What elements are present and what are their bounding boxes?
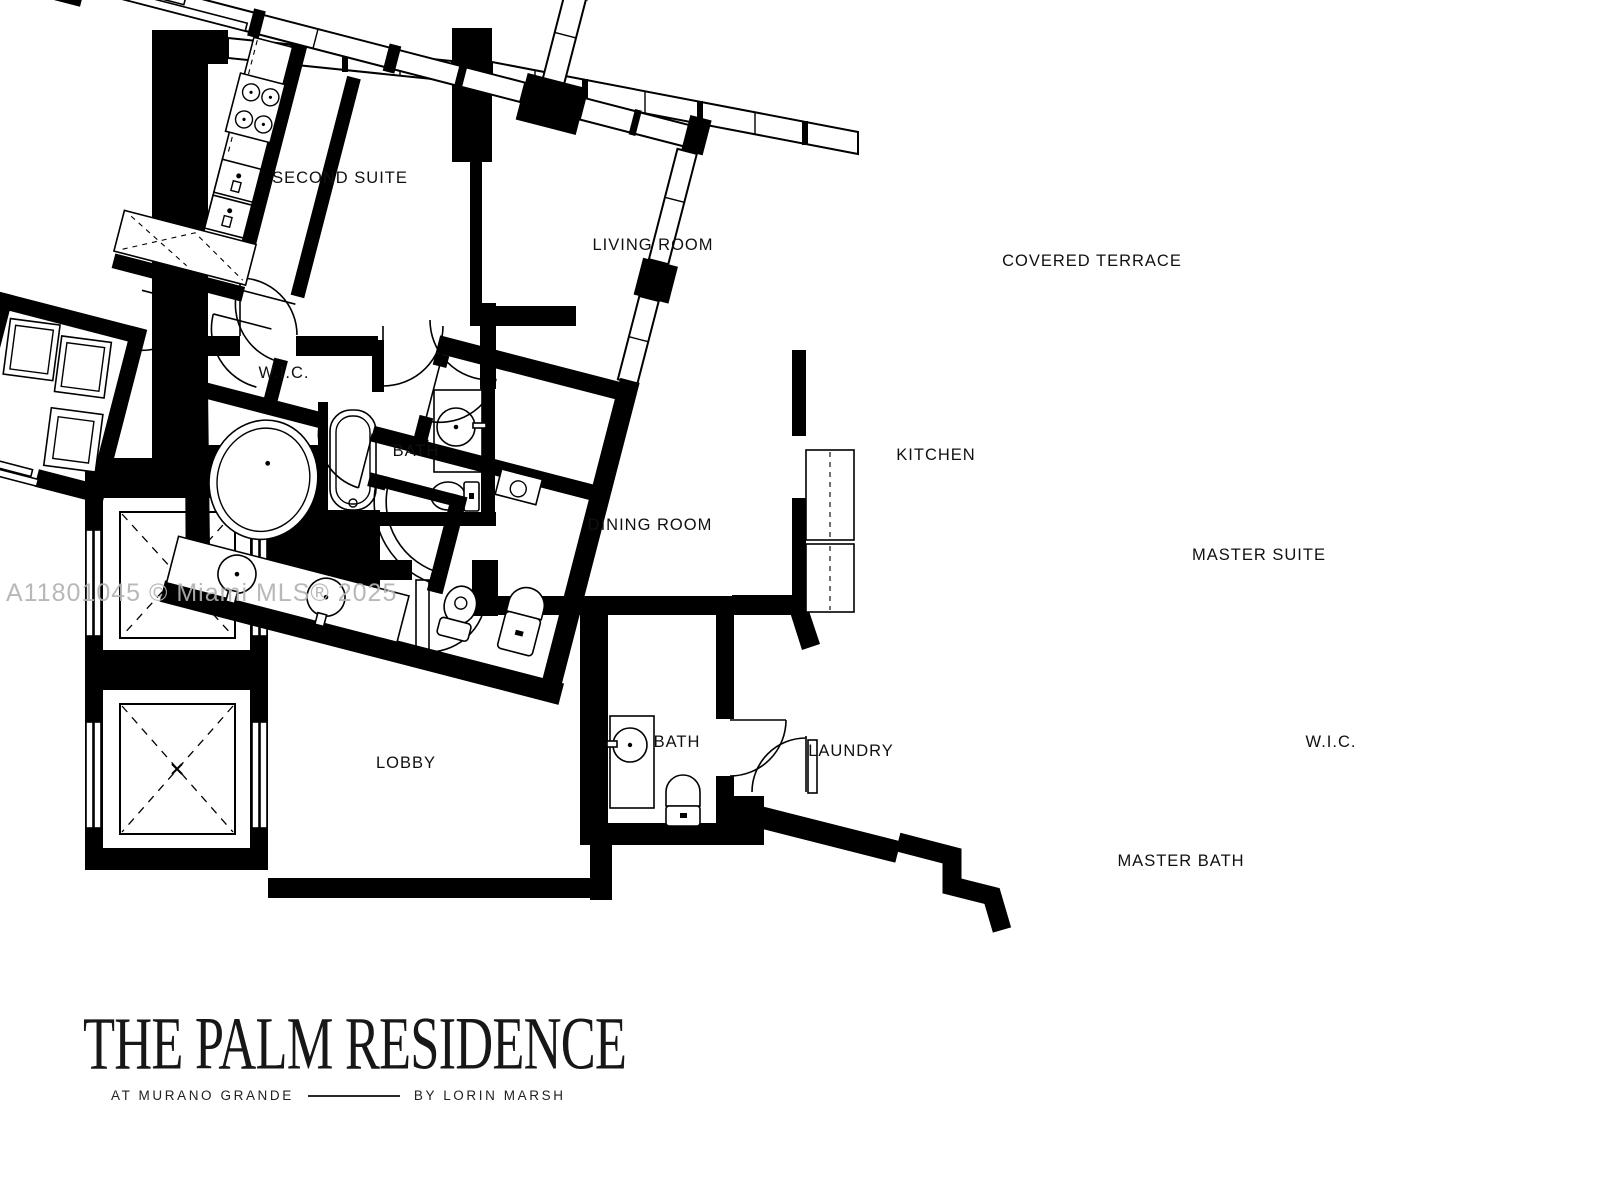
label-dining-room: DINING ROOM bbox=[588, 516, 713, 534]
plan-title: THE PALM RESIDENCE bbox=[83, 1000, 591, 1087]
label-second-suite: SECOND SUITE bbox=[272, 169, 408, 187]
label-bath-second: BATH bbox=[393, 442, 440, 460]
subtitle-divider-line bbox=[308, 1095, 400, 1097]
label-master-suite: MASTER SUITE bbox=[1192, 546, 1326, 564]
kitchen-tall-cabinets bbox=[806, 450, 854, 612]
label-wic-master: W.I.C. bbox=[1306, 733, 1357, 751]
floor-plan-page: SECOND SUITE LIVING ROOM COVERED TERRACE… bbox=[0, 0, 1599, 1199]
label-master-bath: MASTER BATH bbox=[1117, 852, 1244, 870]
label-bath-powder: BATH bbox=[654, 733, 701, 751]
label-wic-second: W.I.C. bbox=[259, 364, 310, 382]
plan-subtitle: AT MURANO GRANDE BY LORIN MARSH bbox=[111, 1088, 703, 1103]
label-kitchen: KITCHEN bbox=[896, 446, 975, 464]
label-lobby: LOBBY bbox=[376, 754, 436, 772]
laundry-sink-unit bbox=[44, 408, 103, 472]
label-laundry: LAUNDRY bbox=[808, 742, 894, 760]
toilet-powder bbox=[666, 775, 700, 826]
plan-subtitle-right: BY LORIN MARSH bbox=[414, 1088, 566, 1103]
title-block: THE PALM RESIDENCE AT MURANO GRANDE BY L… bbox=[83, 1000, 703, 1103]
plan-subtitle-left: AT MURANO GRANDE bbox=[111, 1088, 294, 1103]
mls-watermark: A11801045 © Miami MLS® 2025 bbox=[6, 579, 397, 607]
label-living-room: LIVING ROOM bbox=[592, 236, 713, 254]
label-covered-terrace: COVERED TERRACE bbox=[1002, 252, 1182, 270]
